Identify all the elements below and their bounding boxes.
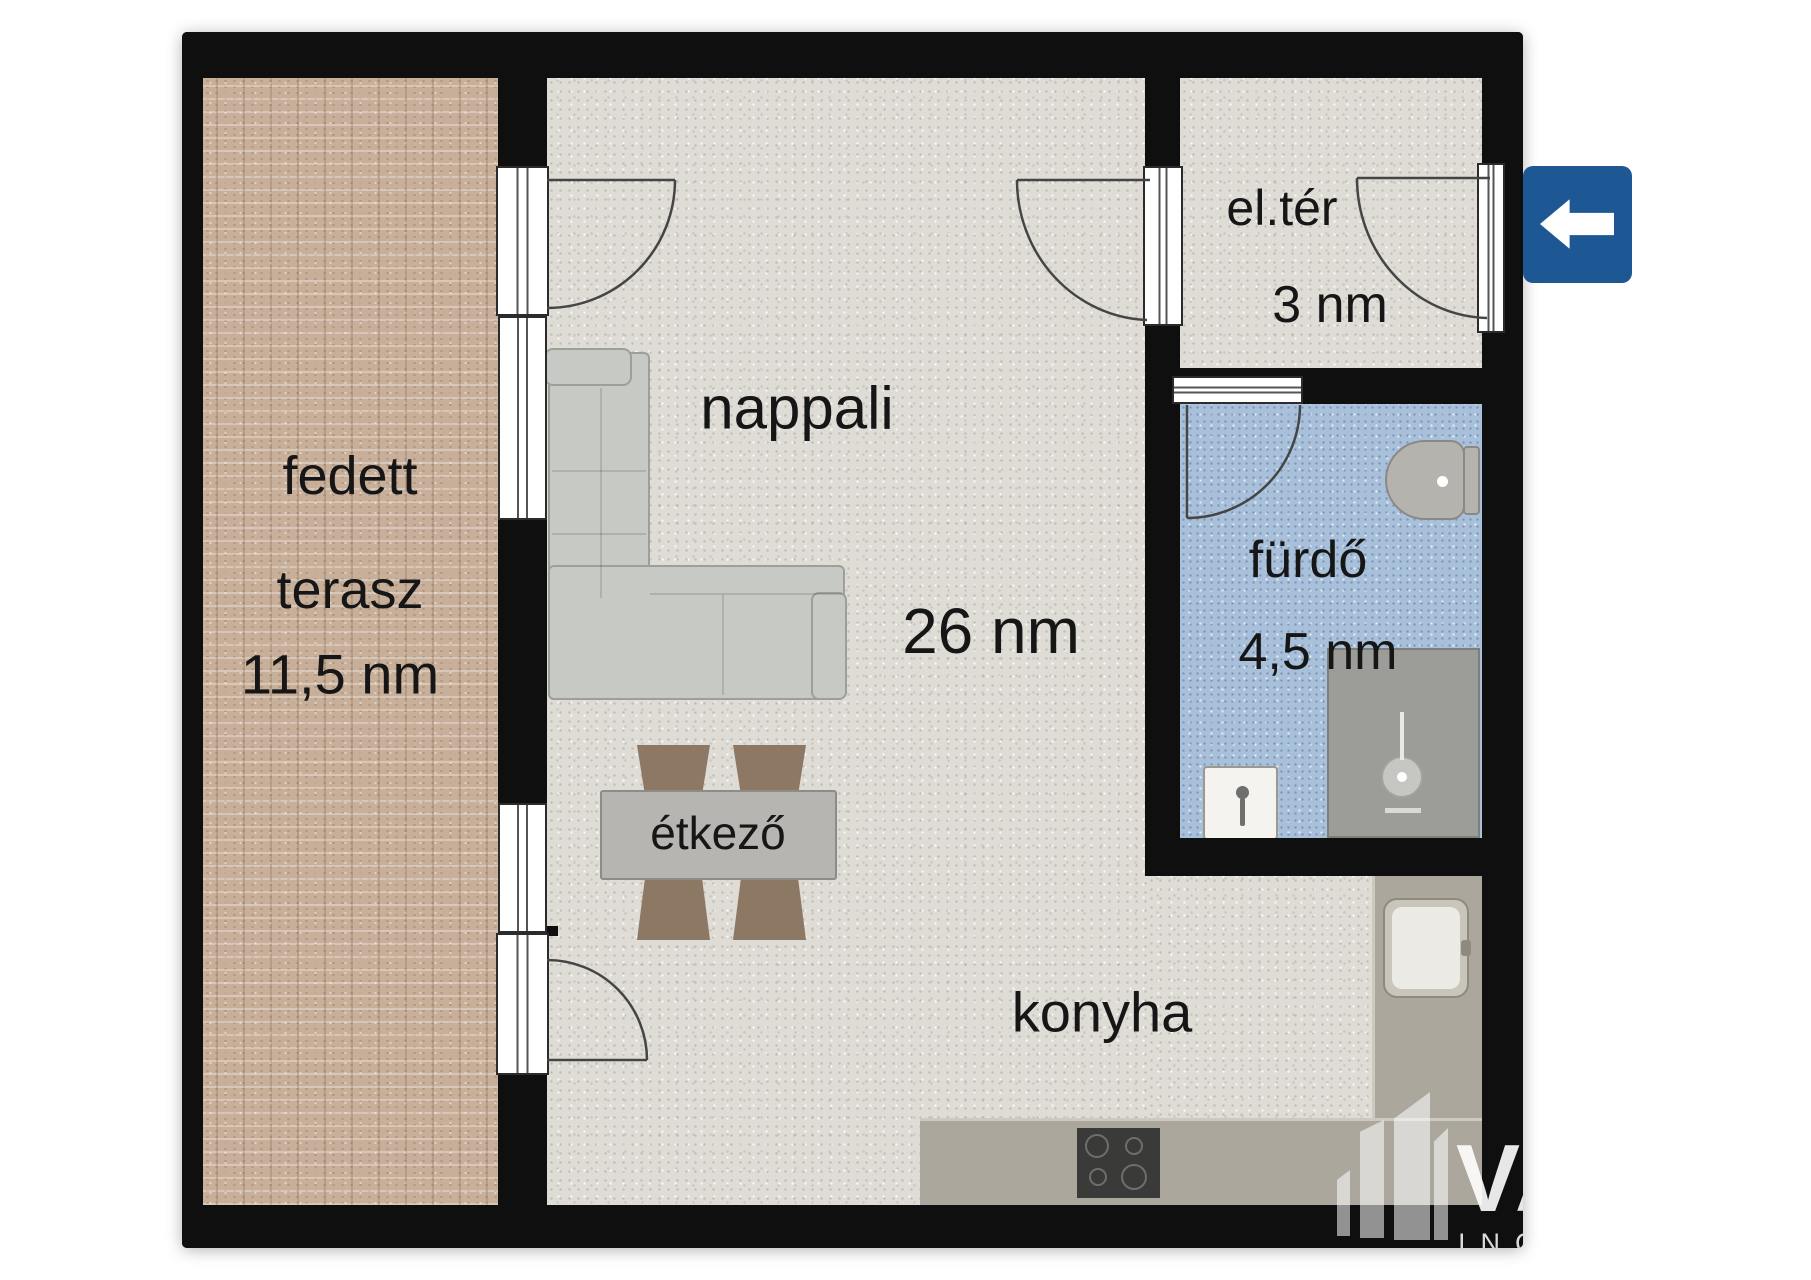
- watermark-subtitle: ING: [1458, 1228, 1523, 1248]
- label-entry-area: 3 nm: [1272, 275, 1388, 335]
- bath-sink-faucet-stem: [1240, 798, 1245, 826]
- entry-door-frame: [1477, 163, 1505, 333]
- sofa-headrest: [544, 348, 632, 386]
- label-kitchen: konyha: [1012, 980, 1193, 1045]
- wall-terrace-living: [498, 1072, 547, 1205]
- dining-chair: [733, 872, 806, 940]
- sofa-cushion-seam: [600, 388, 602, 598]
- bath-sink-icon: [1203, 766, 1278, 840]
- burner: [1125, 1137, 1143, 1155]
- watermark-title: VA: [1456, 1124, 1523, 1234]
- toilet-flush-dot: [1437, 476, 1448, 487]
- sofa-seat: [548, 565, 845, 700]
- buildings-icon: [1434, 1128, 1448, 1240]
- cooktop-icon: [1077, 1128, 1160, 1198]
- window: [498, 803, 547, 933]
- sofa-cushion-seam: [552, 470, 646, 472]
- wall-top: [182, 32, 1523, 78]
- floorplan: fedett terasz 11,5 nm nappali 26 nm étke…: [182, 32, 1523, 1248]
- sofa-cushion-seam: [722, 595, 724, 695]
- sofa-armrest: [811, 592, 847, 700]
- door-frame: [1143, 166, 1183, 326]
- shower-hose: [1400, 712, 1404, 760]
- label-terrace-area: 11,5 nm: [241, 642, 439, 707]
- label-living: nappali: [700, 374, 894, 443]
- shower-head-dot: [1397, 772, 1407, 782]
- label-entry: el.tér: [1226, 179, 1337, 237]
- kitchen-sink-icon: [1383, 898, 1469, 998]
- buildings-icon: [1337, 1170, 1350, 1236]
- wall-bath-kitchen: [1145, 838, 1482, 876]
- label-living-area: 26 nm: [902, 594, 1080, 668]
- door-frame: [496, 933, 549, 1075]
- label-terrace-line2: terasz: [276, 559, 423, 621]
- label-bath-area: 4,5 nm: [1239, 622, 1398, 682]
- wall-left: [182, 32, 203, 1248]
- label-dining: étkező: [650, 806, 786, 860]
- toilet-tank: [1463, 446, 1480, 515]
- door-frame: [496, 166, 549, 316]
- shower-drain: [1385, 808, 1421, 813]
- window: [498, 316, 547, 520]
- label-bath: fürdő: [1249, 530, 1368, 590]
- bath-door-frame: [1172, 376, 1303, 404]
- wall-terrace-living: [498, 520, 547, 807]
- kitchen-sink-basin: [1392, 907, 1460, 989]
- wall-living-entry: [1145, 78, 1180, 168]
- toilet-icon: [1385, 440, 1465, 520]
- kitchen-sink-faucet: [1461, 940, 1471, 956]
- dining-chair: [637, 872, 710, 940]
- sofa-cushion-seam: [650, 593, 842, 595]
- entrance-arrow-sign: [1523, 166, 1632, 283]
- wall-bottom: [182, 1205, 1523, 1248]
- burner: [1089, 1168, 1107, 1186]
- burner: [1121, 1164, 1147, 1190]
- burner: [1085, 1134, 1109, 1158]
- arrow-left-icon: [1540, 193, 1614, 255]
- buildings-icon: [1360, 1120, 1384, 1238]
- wall-terrace-living: [498, 78, 547, 170]
- label-terrace-line1: fedett: [282, 445, 417, 507]
- wall-living-bath: [1145, 324, 1180, 875]
- sofa-cushion-seam: [552, 533, 646, 535]
